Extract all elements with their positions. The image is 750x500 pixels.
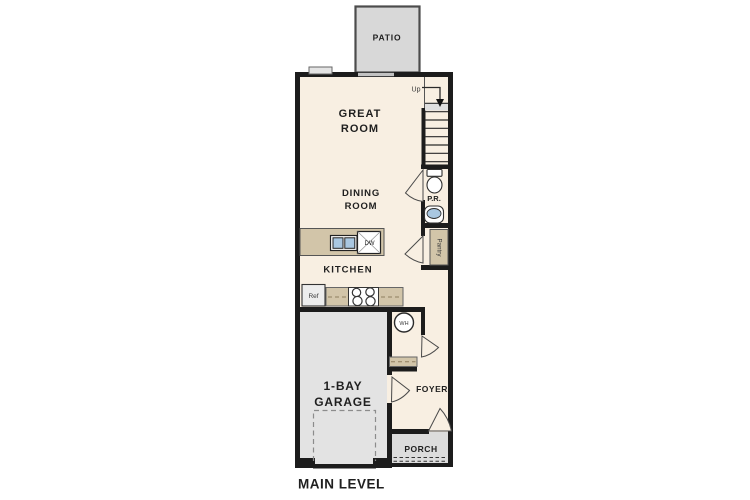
great-room-label-2: ROOM: [341, 123, 379, 135]
garage-label-2: GARAGE: [314, 395, 371, 409]
wall-pr-bottom: [421, 223, 452, 228]
patio-label: PATIO: [373, 33, 402, 43]
toilet-tank: [427, 170, 442, 177]
toilet-bowl: [427, 177, 442, 193]
kitchen-label: KITCHEN: [323, 265, 372, 276]
wall-garage-top: [295, 307, 425, 312]
wall-wh-closet-bottom: [387, 367, 417, 372]
wall-pr-top: [421, 165, 452, 170]
floor-plan: PATIO: [0, 0, 750, 500]
island-sink-basin-right: [345, 238, 355, 249]
patio-slider-door: [358, 73, 394, 76]
plan-title: MAIN LEVEL: [298, 477, 385, 492]
window-top: [309, 67, 332, 74]
powder-room-label: P.R.: [427, 194, 441, 203]
pantry-label: Pantry: [436, 239, 443, 258]
dining-room-label-1: DINING: [342, 188, 380, 199]
wall-stair-left: [422, 108, 426, 167]
stairs-up-label: Up: [412, 87, 421, 94]
wall-pantry-left-stub: [421, 228, 425, 236]
dishwasher-label: DW: [365, 241, 375, 247]
wall-pantry-bottom: [421, 265, 452, 270]
garage-label-1: 1-BAY: [324, 379, 363, 393]
floor-plan-page: PATIO: [0, 0, 750, 500]
kitchen-counter: Ref: [302, 285, 403, 307]
refrigerator-label: Ref: [308, 293, 318, 300]
wall-garage-bottom-left: [295, 458, 315, 468]
porch-bottom-edge: [387, 463, 453, 467]
wall-front: [391, 429, 429, 434]
water-heater-label: WH: [399, 321, 408, 327]
foyer-label: FOYER: [416, 384, 448, 394]
porch-label: PORCH: [404, 444, 437, 454]
patio-area: PATIO: [356, 7, 420, 73]
dining-room-label-2: ROOM: [345, 201, 378, 212]
stair-landing: [425, 103, 448, 111]
island-sink-basin-left: [333, 238, 343, 249]
pr-sink-basin: [427, 209, 441, 219]
wall-wh-closet-right: [421, 312, 425, 335]
kitchen-island: DW: [300, 229, 384, 256]
wall-left: [295, 72, 300, 468]
great-room-label-1: GREAT: [339, 108, 382, 120]
garage-door-sill: [313, 464, 376, 469]
